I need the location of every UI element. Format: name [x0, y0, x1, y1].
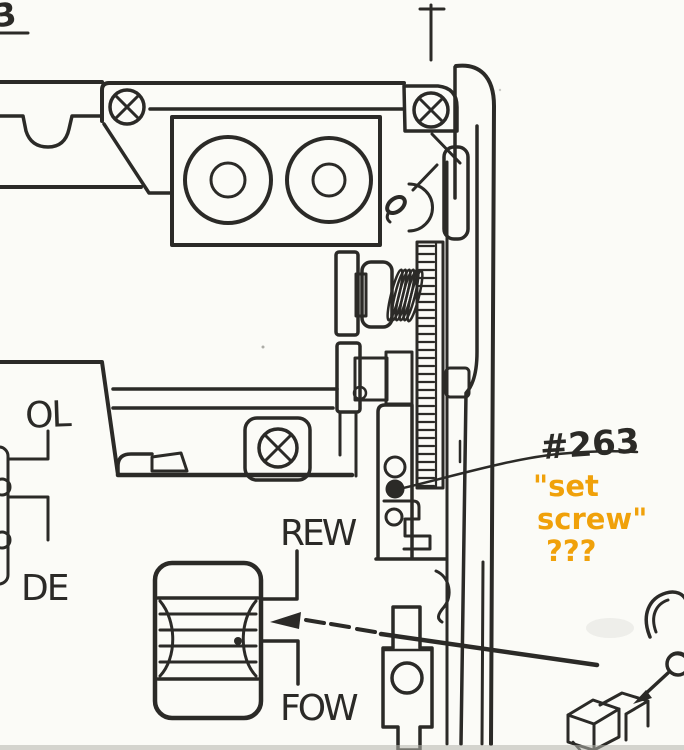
label-rew: REW [280, 513, 357, 554]
label-fow: FOW [280, 688, 358, 729]
label-ol: OL [24, 394, 72, 437]
annotation-line-1: "set [533, 469, 599, 503]
annotation-line-3: ??? [546, 534, 596, 568]
knob-index-dot [234, 637, 242, 645]
scanned-diagram-page: 3 [0, 0, 684, 750]
scan-edge [0, 745, 684, 750]
mechanism-diagram: 3 [0, 0, 684, 750]
label-de: DE [21, 568, 68, 609]
part-number-label: #263 [539, 421, 641, 468]
annotation-line-2: screw" [537, 502, 647, 536]
